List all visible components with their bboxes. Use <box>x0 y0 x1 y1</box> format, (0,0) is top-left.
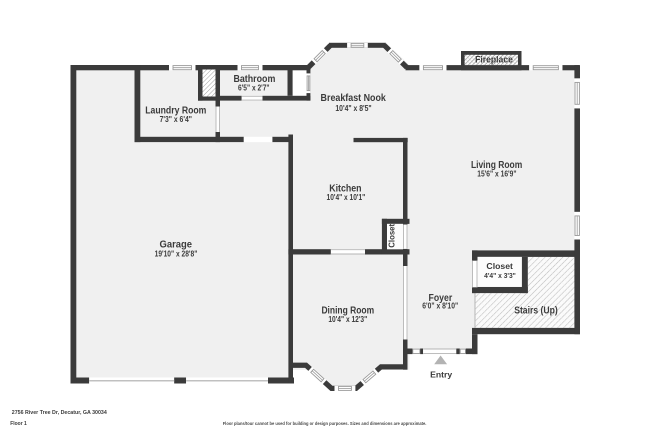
svg-text:6'0" x 8'10": 6'0" x 8'10" <box>422 301 458 310</box>
svg-text:10'4" x 12'3": 10'4" x 12'3" <box>328 315 367 324</box>
svg-text:Floor plans/tour cannot be use: Floor plans/tour cannot be used for buil… <box>223 421 427 426</box>
svg-text:10'4" x 10'1": 10'4" x 10'1" <box>327 193 366 202</box>
svg-text:Stairs (Up): Stairs (Up) <box>514 306 558 317</box>
svg-text:10'4" x 8'5": 10'4" x 8'5" <box>335 104 372 113</box>
svg-text:Breakfast Nook: Breakfast Nook <box>321 93 387 104</box>
svg-text:Fireplace: Fireplace <box>475 54 513 64</box>
svg-text:4'4" x 3'3": 4'4" x 3'3" <box>484 271 516 280</box>
svg-text:15'6" x 16'9": 15'6" x 16'9" <box>477 170 516 179</box>
svg-text:19'10" x 28'8": 19'10" x 28'8" <box>155 249 198 259</box>
svg-text:Entry: Entry <box>430 371 453 380</box>
svg-text:Closet: Closet <box>486 262 513 271</box>
svg-text:Closet: Closet <box>387 224 396 248</box>
svg-text:2756 River Tree Dr, Decatur, G: 2756 River Tree Dr, Decatur, GA 30034 <box>12 410 108 416</box>
svg-text:6'5" x 2'7": 6'5" x 2'7" <box>238 84 270 93</box>
svg-text:7'3" x 6'4": 7'3" x 6'4" <box>160 115 193 124</box>
svg-text:Floor 1: Floor 1 <box>10 421 27 427</box>
